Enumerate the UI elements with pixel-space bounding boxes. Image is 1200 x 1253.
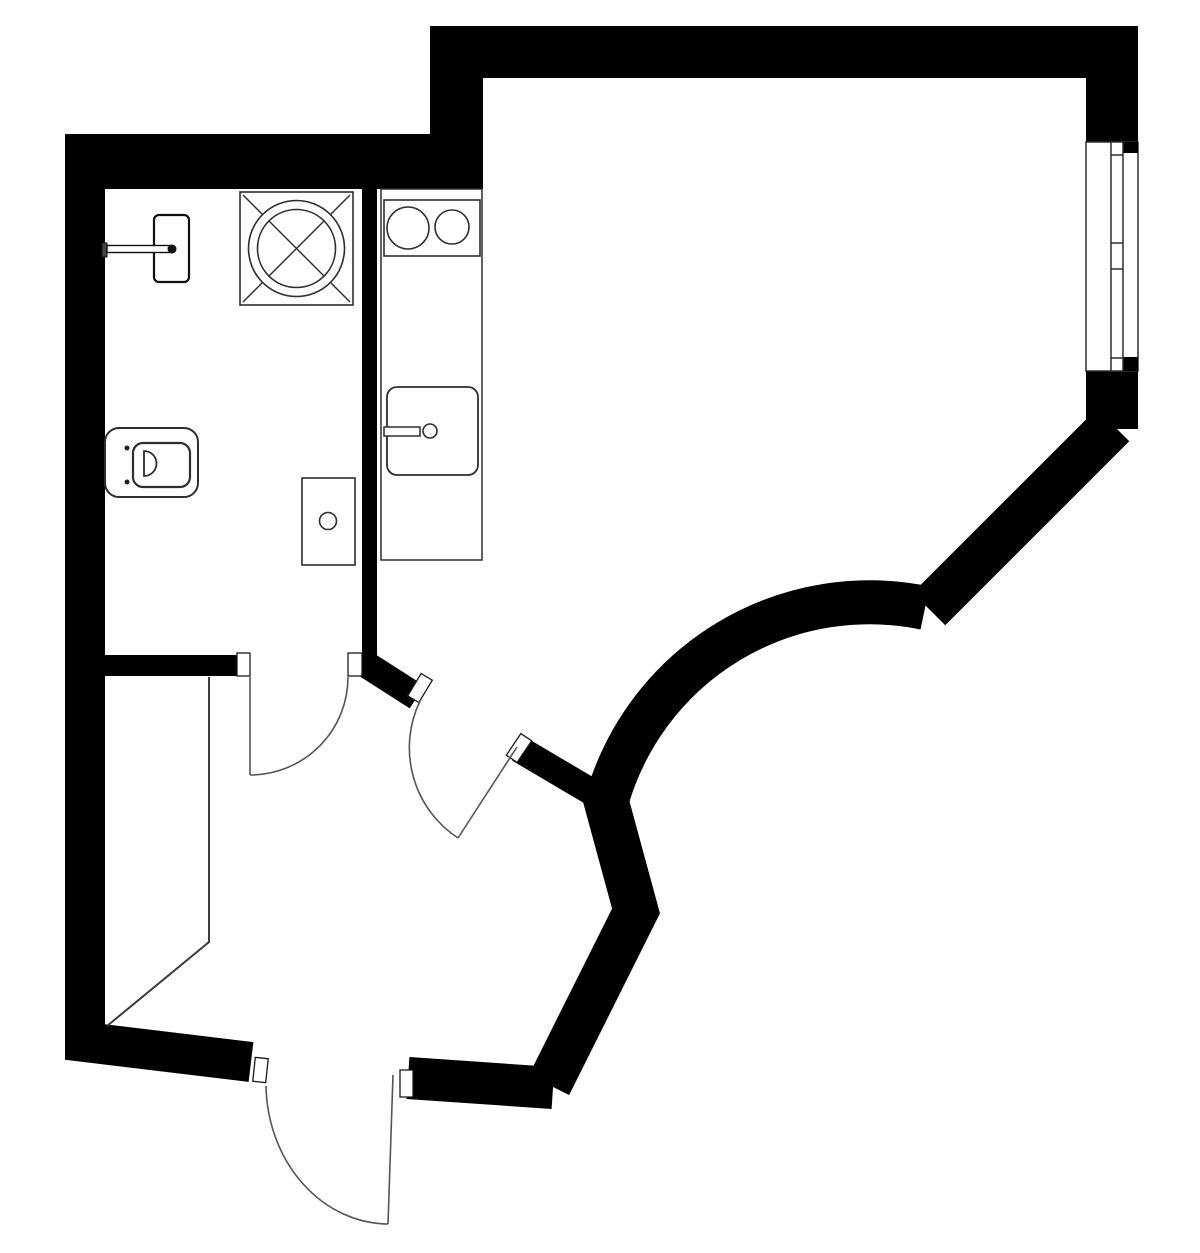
wall-divider-kitchen — [362, 189, 377, 677]
floor-plan-drawing — [0, 0, 1200, 1253]
towel-radiator-knob — [168, 245, 177, 254]
wall-top-main — [430, 26, 1138, 78]
toilet-bolt-1 — [125, 446, 130, 451]
jamb-entry-right — [400, 1070, 413, 1097]
jamb-bath-right — [348, 653, 362, 676]
towel-radiator-bar — [107, 246, 172, 253]
jamb-entry-left — [253, 1057, 268, 1082]
window-sash — [1111, 142, 1123, 371]
towel-radiator-wall-cap — [102, 243, 107, 257]
sink-tap-bar — [384, 427, 420, 436]
window-wall-notch-1 — [1123, 142, 1138, 153]
wall-top-bathroom — [65, 134, 483, 189]
jamb-bath-left — [237, 653, 250, 676]
window-wall-notch-2 — [1123, 357, 1138, 371]
floor-plan-page — [0, 0, 1200, 1253]
toilet-bolt-2 — [125, 480, 130, 485]
wall-bathroom-bottom — [105, 655, 237, 676]
wall-bottom-right — [408, 1078, 553, 1088]
washing-machine-box — [302, 478, 355, 565]
wall-right-upper — [1086, 26, 1138, 142]
